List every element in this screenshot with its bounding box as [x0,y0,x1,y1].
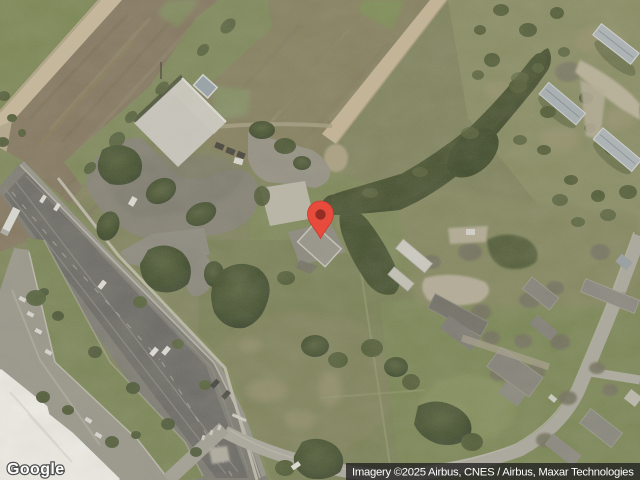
svg-text:Imagery ©2025 Airbus, CNES / A: Imagery ©2025 Airbus, CNES / Airbus, Max… [352,467,634,479]
svg-text:Google: Google [7,461,65,478]
